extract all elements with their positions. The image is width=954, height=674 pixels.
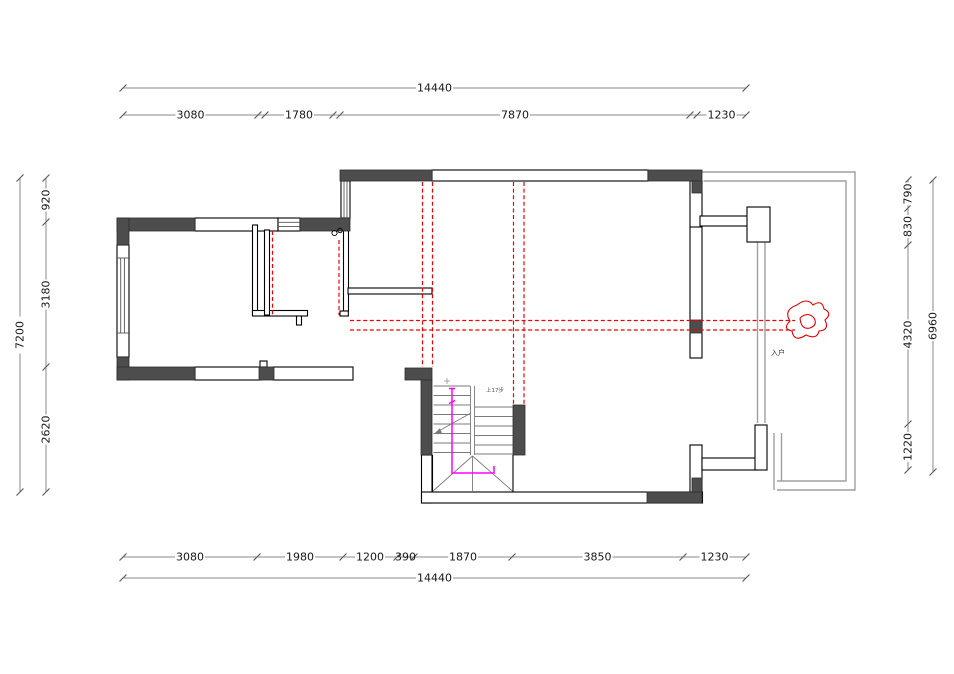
dim-bottom-seg-4: 1870 bbox=[449, 551, 477, 564]
dim-top-seg-0: 3080 bbox=[177, 109, 205, 122]
dim-right-seg-0: 790 bbox=[902, 184, 915, 205]
flue-notch bbox=[260, 361, 267, 367]
dim-bottom-seg-5: 3850 bbox=[584, 551, 612, 564]
stair-note-label: 上17步 bbox=[486, 386, 504, 394]
dim-left-total: 7200 bbox=[14, 321, 27, 349]
entry-label: 入户 bbox=[771, 348, 785, 357]
dim-bottom-seg-1: 1980 bbox=[286, 551, 314, 564]
dim-bottom-total: 14440 bbox=[417, 572, 452, 585]
floor-plan-canvas: 14440 3080 1780 7870 1230 3080 1980 bbox=[0, 0, 954, 674]
dim-left-seg-0: 920 bbox=[40, 190, 53, 211]
dim-left-seg-2: 2620 bbox=[40, 416, 53, 444]
dim-top-total: 14440 bbox=[417, 82, 452, 95]
dim-right-seg-1: 830 bbox=[902, 216, 915, 237]
dim-top-seg-1: 1780 bbox=[285, 109, 313, 122]
dim-bottom-seg-2: 1200 bbox=[356, 551, 384, 564]
dim-top-seg-2: 7870 bbox=[501, 109, 529, 122]
dim-bottom-seg-0: 3080 bbox=[176, 551, 204, 564]
dim-right-seg-2: 4320 bbox=[902, 321, 915, 349]
dim-right-total: 6960 bbox=[927, 312, 940, 340]
dim-top-seg-3: 1230 bbox=[708, 109, 736, 122]
dim-bottom-seg-6: 1230 bbox=[701, 551, 729, 564]
dim-left-seg-1: 3180 bbox=[40, 281, 53, 309]
dim-right-seg-3: 1220 bbox=[902, 433, 915, 461]
dim-bottom-seg-3: 390 bbox=[395, 551, 416, 564]
beam-block bbox=[690, 320, 702, 333]
